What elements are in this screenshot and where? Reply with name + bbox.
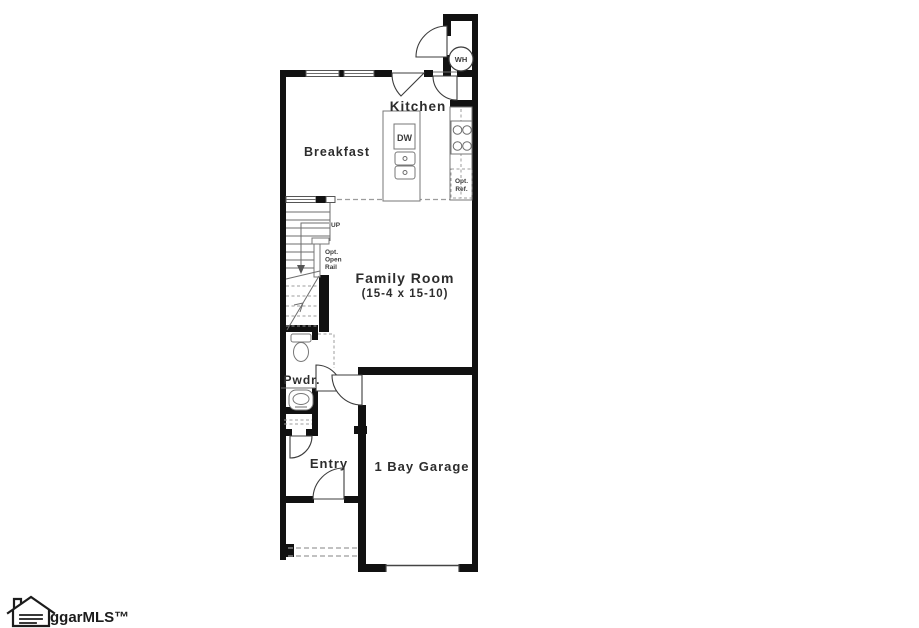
- floor-plan-drawing: Kitchen Breakfast Family Room (15-4 x 15…: [0, 0, 919, 628]
- breakfast-label: Breakfast: [304, 145, 370, 159]
- up-label: UP: [331, 222, 341, 229]
- under-stair-option-line: [318, 334, 334, 368]
- toilet: [291, 334, 311, 362]
- kitchen-island: [383, 111, 420, 201]
- floor-plan-page: Kitchen Breakfast Family Room (15-4 x 15…: [0, 0, 919, 628]
- opt-rail-label-1: Opt.: [325, 249, 338, 256]
- windows: [286, 71, 374, 204]
- opt-ref-label-1: Opt.: [455, 178, 468, 185]
- water-heater-label: WH: [455, 55, 468, 64]
- range-cooktop: [451, 121, 472, 154]
- opt-rail-label-2: Open: [325, 257, 342, 264]
- garage-service-door: [332, 375, 362, 405]
- kitchen-label: Kitchen: [390, 99, 447, 114]
- mls-watermark-logo: ggarMLS™: [8, 597, 129, 626]
- breakfast-window-1: [306, 71, 339, 77]
- double-sink: [395, 152, 415, 179]
- front-door: [313, 468, 344, 499]
- stair-landing-window: [286, 196, 335, 203]
- mls-logo-text: ggarMLS™: [50, 609, 129, 626]
- entry-closet-door: [290, 436, 312, 458]
- house-icon: [8, 597, 54, 626]
- opt-rail-label-3: Rail: [325, 264, 337, 271]
- powder-sink: [281, 388, 315, 410]
- family-room-dimensions: (15-4 x 15-10): [362, 288, 449, 300]
- powder-fixtures: [281, 334, 315, 410]
- porch-column: [281, 544, 294, 557]
- entry-label: Entry: [310, 456, 348, 471]
- opt-ref-label-2: Ref.: [455, 186, 467, 193]
- garage-label: 1 Bay Garage: [374, 459, 469, 474]
- kitchen-back-door: [392, 73, 424, 96]
- dishwasher-label: DW: [397, 133, 412, 143]
- family-room-label: Family Room: [356, 270, 455, 286]
- powder-label: Pwdr.: [283, 373, 320, 387]
- stair-rail-newel: [312, 238, 329, 244]
- breakfast-window-2: [344, 71, 374, 77]
- wh-closet-door: [416, 26, 447, 57]
- rear-entry-door: [433, 76, 457, 100]
- stair-down-diagonal: [287, 276, 319, 330]
